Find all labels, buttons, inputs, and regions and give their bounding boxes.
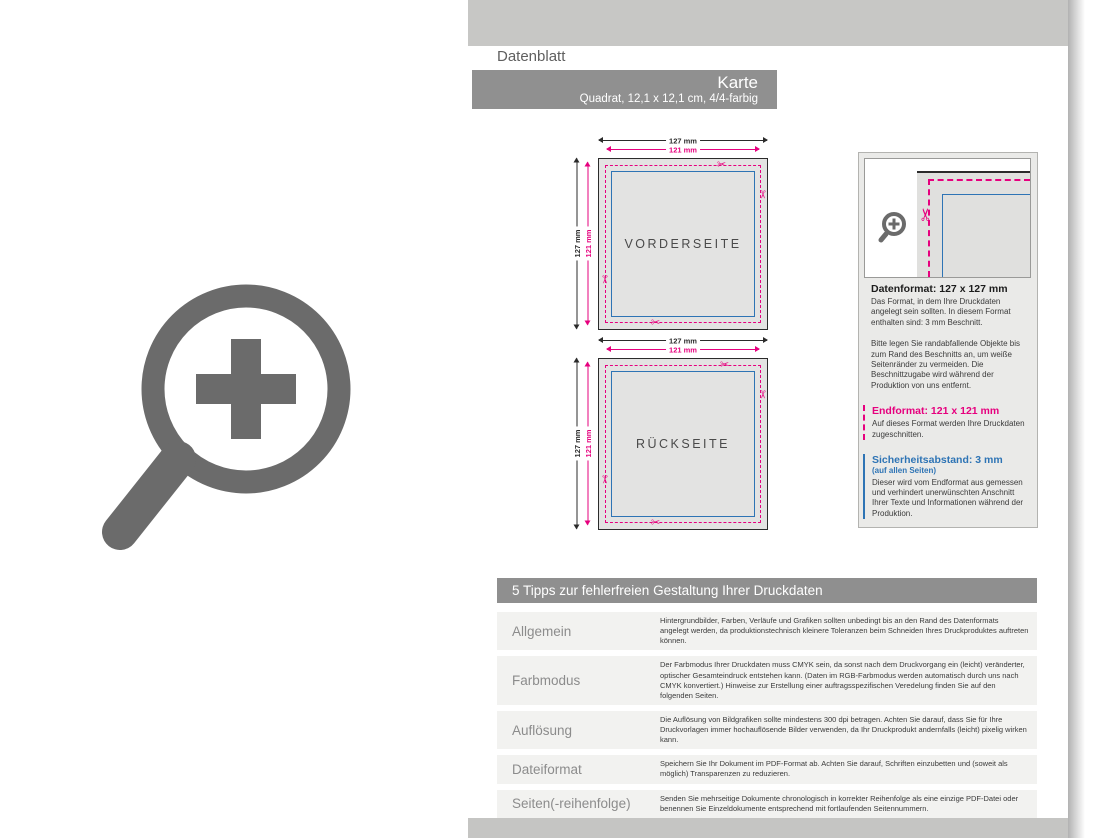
datenformat-body1: Das Format, in dem Ihre Druckdaten angel… [871,297,1027,328]
datenformat-block: Datenformat: 127 x 127 mm Das Format, in… [859,283,1037,391]
table-row: Seiten(-reihenfolge) Senden Sie mehrseit… [497,790,1037,818]
back-side-label: RÜCKSEITE [599,437,767,451]
front-card-area: ✂ ✂ ✂ ✂ VORDERSEITE [598,158,768,330]
product-title-bar: Karte Quadrat, 12,1 x 12,1 cm, 4/4-farbi… [472,70,777,109]
tip-text: Hintergrundbilder, Farben, Verläufe und … [660,612,1037,650]
tip-label: Dateiformat [497,755,660,783]
datasheet-page: Datenblatt Karte Quadrat, 12,1 x 12,1 cm… [468,0,1068,838]
endformat-heading: Endformat: 121 x 121 mm [872,405,1027,417]
endformat-body: Auf dieses Format werden Ihre Druckdaten… [872,419,1027,440]
tip-text: Senden Sie mehrseitige Dokumente chronol… [660,790,1037,818]
sicherheitsabstand-block: Sicherheitsabstand: 3 mm (auf allen Seit… [863,454,1037,519]
dimension-back-height-inner: 121 mm [584,362,593,526]
scissors-icon: ✂ [756,390,767,399]
zoom-plus-icon-small [876,211,908,245]
scissors-icon: ✂ [720,360,729,371]
datenblatt-tab: Datenblatt [488,46,594,69]
dimension-front-height-inner: 121 mm [584,162,593,326]
tip-label: Farbmodus [497,656,660,705]
datenformat-body2: Bitte legen Sie randabfallende Objekte b… [871,339,1027,391]
scissors-icon: ✂ [756,190,767,199]
tip-text: Der Farbmodus Ihrer Druckdaten muss CMYK… [660,656,1037,705]
table-row: Allgemein Hintergrundbilder, Farben, Ver… [497,612,1037,650]
scissors-icon: ✂ [717,160,726,171]
sicherheitsabstand-heading: Sicherheitsabstand: 3 mm [872,454,1027,466]
datenformat-heading: Datenformat: 127 x 127 mm [871,283,1027,295]
endformat-block: Endformat: 121 x 121 mm Auf dieses Forma… [863,405,1037,440]
tip-text: Die Auflösung von Bildgrafiken sollte mi… [660,711,1037,749]
sicherheitsabstand-subheading: (auf allen Seiten) [872,466,1027,476]
product-title: Karte [472,73,758,92]
dimension-front-height-outer: 127 mm [573,158,582,330]
scissors-icon: ✂ [651,318,660,329]
cut-line [928,179,1030,181]
cut-line [928,179,930,277]
tips-table: 5 Tipps zur fehlerfreien Gestaltung Ihre… [497,578,1037,824]
product-subtitle: Quadrat, 12,1 x 12,1 cm, 4/4-farbig [472,92,758,106]
scissors-icon: ✂ [598,275,609,284]
tip-label: Auflösung [497,711,660,749]
dimension-back-height-outer: 127 mm [573,358,582,530]
dimension-front-width-outer: 127 mm [598,136,768,145]
tip-text: Speichern Sie Ihr Dokument im PDF-Format… [660,755,1037,783]
zoom-plus-icon [98,282,360,550]
tips-header: 5 Tipps zur fehlerfreien Gestaltung Ihre… [497,578,1037,603]
page-edge-shadow [1068,0,1085,838]
front-side-diagram: 127 mm 121 mm 127 mm 121 mm ✂ ✂ ✂ ✂ VORD… [575,135,775,335]
dimension-front-width-inner: 121 mm [606,145,760,154]
safety-line [942,194,943,277]
scissors-icon: ✂ [598,475,609,484]
dimension-back-width-outer: 127 mm [598,336,768,345]
sicherheitsabstand-body: Dieser wird vom Endformat aus gemessen u… [872,478,1027,520]
scissors-icon: ✂ [918,207,935,221]
back-card-area: ✂ ✂ ✂ ✂ RÜCKSEITE [598,358,768,530]
front-side-label: VORDERSEITE [599,237,767,251]
back-side-diagram: 127 mm 121 mm 127 mm 121 mm ✂ ✂ ✂ ✂ RÜCK… [575,335,775,535]
table-row: Dateiformat Speichern Sie Ihr Dokument i… [497,755,1037,783]
dimension-back-width-inner: 121 mm [606,345,760,354]
corner-detail-view: ✂ [864,158,1031,278]
safety-line [942,194,1030,195]
tip-label: Seiten(-reihenfolge) [497,790,660,818]
top-band [468,0,1068,46]
table-row: Farbmodus Der Farbmodus Ihrer Druckdaten… [497,656,1037,705]
tip-label: Allgemein [497,612,660,650]
format-info-panel: ✂ Datenformat: 127 x 127 mm Das Format, … [858,152,1038,528]
bleed-area [917,171,1030,277]
table-row: Auflösung Die Auflösung von Bildgrafiken… [497,711,1037,749]
scissors-icon: ✂ [651,518,660,529]
